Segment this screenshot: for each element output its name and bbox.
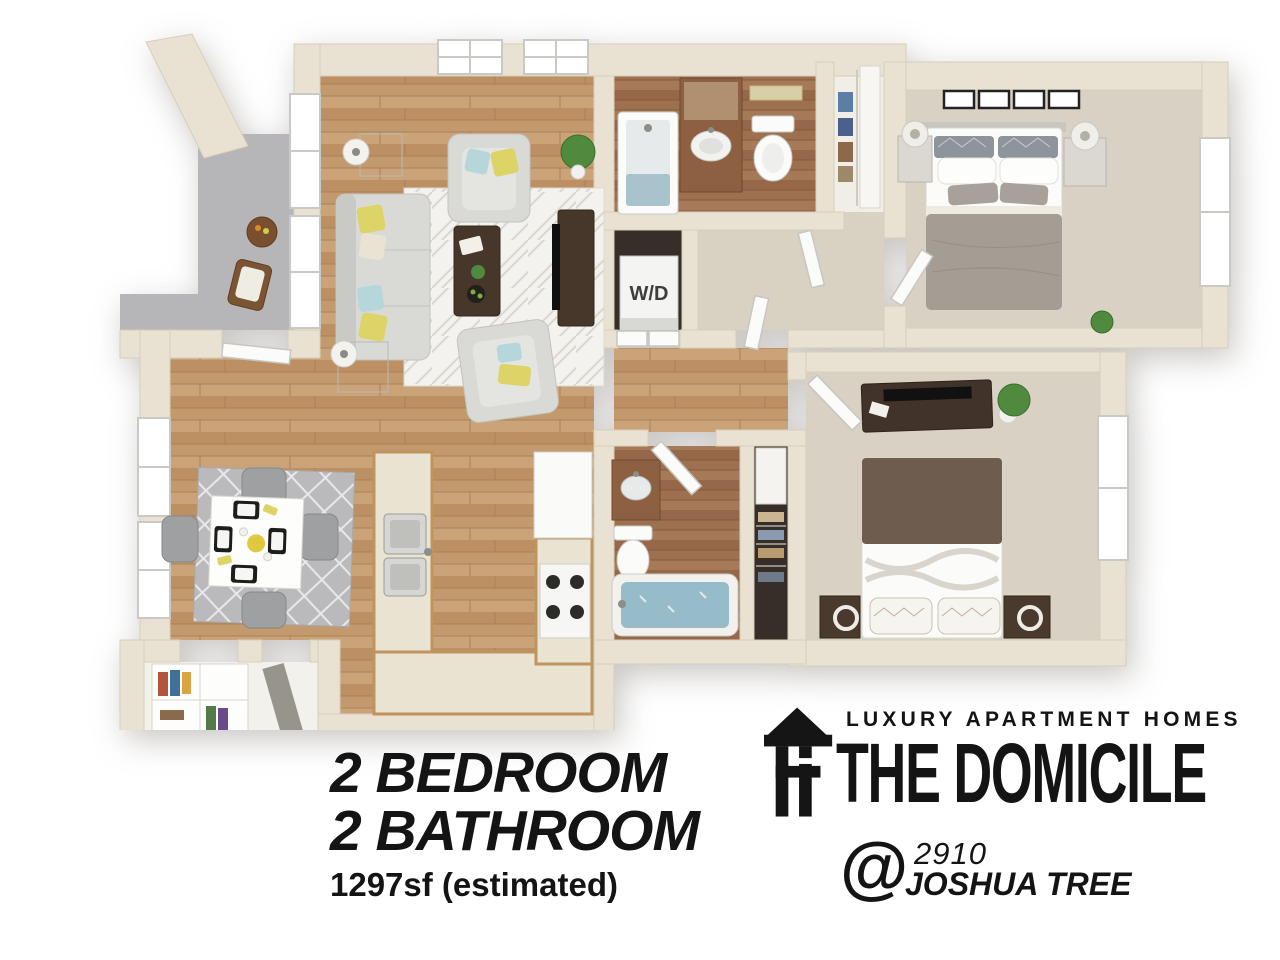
dining-chair-bottom bbox=[242, 592, 286, 628]
duvet bbox=[926, 214, 1062, 310]
bedroom-count: 2 BEDROOM bbox=[330, 744, 699, 802]
duvet-brown bbox=[862, 458, 1002, 544]
master-toilet bbox=[752, 116, 794, 181]
bath2-sink bbox=[621, 476, 651, 500]
fruit-bowl bbox=[255, 225, 261, 231]
floor-plan-marketing-page: { "floor_plan": { "type": "3d-top-down-f… bbox=[0, 0, 1280, 960]
suite-hall-floor bbox=[698, 230, 884, 330]
wall-closet-left bbox=[816, 62, 834, 212]
pillow-yellow bbox=[356, 204, 386, 234]
bath2-faucet bbox=[633, 471, 639, 477]
wall-top-master bbox=[884, 62, 1228, 90]
pillow-blue bbox=[356, 284, 384, 312]
dining-chair-right bbox=[300, 514, 338, 560]
refrigerator bbox=[534, 452, 592, 538]
window-second-bedroom bbox=[1098, 416, 1128, 560]
vanity-mirror bbox=[684, 82, 738, 120]
tub-water bbox=[626, 174, 670, 206]
unit-details: 2 BEDROOM 2 BATHROOM 1297sf (estimated) bbox=[330, 744, 699, 901]
table-plant bbox=[471, 265, 485, 279]
pillow2-1 bbox=[870, 598, 932, 634]
laundry-door-right bbox=[649, 331, 679, 346]
bedroom2-bed bbox=[862, 458, 1002, 638]
pillow-pattern-1 bbox=[934, 136, 994, 158]
window-master-bedroom bbox=[1200, 138, 1230, 286]
patio-wall-spur bbox=[146, 34, 248, 158]
window-living-top-1 bbox=[438, 40, 502, 74]
living-plant bbox=[561, 135, 595, 169]
bedroom2-plant bbox=[998, 384, 1030, 416]
plant-pot bbox=[571, 165, 585, 179]
plate-2 bbox=[264, 553, 272, 561]
brand-name: THE DOMICILE bbox=[836, 734, 1206, 812]
wall-patio-bottom-right bbox=[288, 330, 320, 358]
lamp-stem-2 bbox=[340, 350, 348, 358]
wall-dining-bottom-a bbox=[140, 640, 180, 662]
linen-door-panel bbox=[756, 448, 786, 504]
window-living-top-2 bbox=[524, 40, 588, 74]
bath2-tub bbox=[612, 574, 738, 636]
wall-bath2-top-b bbox=[716, 430, 806, 446]
lamp-stem bbox=[352, 148, 360, 156]
hallway-floor bbox=[614, 348, 788, 432]
pillow-white-2 bbox=[1000, 158, 1058, 184]
master-vanity bbox=[680, 78, 742, 192]
wall-patio-bottom-left bbox=[120, 330, 222, 358]
pillow-pattern-2 bbox=[998, 136, 1058, 158]
wall-kitchen-bottom bbox=[318, 714, 600, 730]
wall-bedroom2-left-a bbox=[788, 352, 806, 380]
suite-hall-floor2 bbox=[844, 212, 884, 230]
wall-dining-bottom-b bbox=[238, 640, 262, 662]
at-symbol: @ bbox=[840, 832, 908, 902]
dining-table bbox=[209, 496, 304, 589]
laundry-door-left bbox=[617, 331, 647, 346]
wall-bath-bottom bbox=[594, 212, 844, 230]
plate bbox=[239, 528, 247, 536]
tub2-water bbox=[621, 582, 729, 628]
pillow-accent-2 bbox=[999, 182, 1048, 205]
lamp-right-core bbox=[1080, 131, 1090, 141]
washer-dryer-label: W/D bbox=[630, 283, 669, 305]
wall-master-bottom bbox=[906, 328, 1228, 348]
entry-shelf-unit bbox=[152, 664, 248, 730]
bath2-toilet bbox=[614, 526, 652, 580]
pillow-cream bbox=[358, 232, 386, 260]
bedroom2-dresser bbox=[861, 380, 993, 433]
pillow-yellow-2 bbox=[358, 312, 388, 342]
stage: W/D bbox=[0, 0, 1280, 960]
armchair-1 bbox=[448, 134, 530, 222]
washer-dryer-drawer bbox=[620, 318, 678, 330]
laundry-closet: W/D bbox=[620, 256, 678, 330]
patio-floor-lower bbox=[120, 294, 218, 330]
wall-bedroom2-left-b bbox=[788, 444, 806, 664]
bathroom-count: 2 BATHROOM bbox=[330, 802, 699, 860]
apple bbox=[471, 290, 476, 295]
wall-linen-divider bbox=[740, 446, 754, 640]
faucet bbox=[424, 548, 432, 556]
armchair-2 bbox=[456, 318, 560, 424]
nightstand2-right bbox=[1004, 596, 1050, 638]
master-plant bbox=[1091, 311, 1113, 333]
window-living-left-2 bbox=[290, 216, 320, 328]
wall-entry-left bbox=[120, 640, 144, 730]
wall-center-lower bbox=[594, 432, 614, 730]
wall-bedroom2-top bbox=[806, 352, 1126, 372]
address-street: JOSHUA TREE bbox=[905, 866, 1131, 903]
dining-chair-left bbox=[162, 516, 198, 562]
tub2-faucet bbox=[618, 600, 626, 608]
sofa bbox=[336, 194, 430, 360]
square-footage: 1297sf (estimated) bbox=[330, 868, 699, 901]
fruit-dish bbox=[467, 285, 485, 303]
shower-tub bbox=[618, 112, 678, 214]
closet-shelving bbox=[860, 66, 880, 208]
fruit-bowl-2 bbox=[263, 228, 269, 234]
window-dining-1 bbox=[138, 418, 170, 516]
wall-top-living-bath bbox=[294, 44, 906, 76]
master-bed bbox=[922, 122, 1066, 310]
lamp-left-core bbox=[910, 129, 920, 139]
tv-console bbox=[552, 210, 594, 326]
shower-head bbox=[644, 124, 652, 132]
tv-screen bbox=[552, 224, 560, 310]
pillow2-2 bbox=[938, 598, 1000, 634]
wall-bath2-top-a bbox=[594, 430, 648, 446]
pillow-white-1 bbox=[938, 158, 996, 184]
bath2-vanity bbox=[612, 460, 660, 520]
apple-2 bbox=[478, 294, 483, 299]
nightstand2-left bbox=[820, 596, 860, 638]
wall-bedroom2-bottom bbox=[788, 640, 1126, 666]
window-living-left-1 bbox=[290, 94, 320, 208]
sink-faucet bbox=[708, 127, 714, 133]
floor-plan-render: W/D bbox=[0, 0, 1280, 730]
stove bbox=[540, 564, 590, 638]
wall-master-left-b bbox=[884, 306, 906, 348]
address-number: 2910 bbox=[914, 836, 987, 872]
wall-bath2-bottom bbox=[594, 640, 806, 664]
patio-table bbox=[247, 217, 277, 247]
pillow-accent-1 bbox=[947, 182, 998, 205]
wall-hall-top-b bbox=[680, 330, 736, 348]
towel-rack bbox=[750, 86, 802, 100]
coffee-table bbox=[454, 226, 500, 316]
